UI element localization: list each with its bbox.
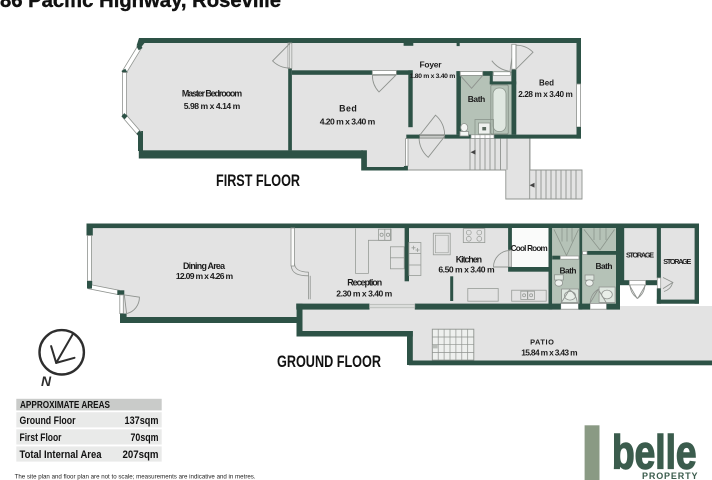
svg-text:Bath: Bath [596,261,613,271]
svg-text:STORAGE: STORAGE [663,257,691,266]
svg-text:Cool Room: Cool Room [511,244,548,253]
svg-text:Bed: Bed [339,104,357,114]
svg-text:Bath: Bath [468,94,486,104]
svg-text:Kitchen: Kitchen [456,254,482,264]
svg-text:Bed: Bed [539,79,554,88]
svg-text:15.84 m x 3.43 m: 15.84 m x 3.43 m [521,347,577,357]
svg-text:2.28 m x 3.40 m: 2.28 m x 3.40 m [518,90,573,99]
svg-text:2.30 m x 3.40 m: 2.30 m x 3.40 m [336,288,392,298]
svg-text:207sqm: 207sqm [123,449,159,461]
svg-text:12.09 m x 4.26 m: 12.09 m x 4.26 m [176,271,234,281]
svg-text:Bath: Bath [560,266,577,276]
svg-text:Master Bedrooom: Master Bedrooom [182,89,242,99]
svg-text:The site plan and floor plan a: The site plan and floor plan are not to … [15,474,256,480]
svg-text:Foyer: Foyer [420,59,443,69]
svg-text:Reception: Reception [347,277,382,287]
svg-text:Dining Area: Dining Area [183,261,225,271]
svg-text:1.80 m x 3.40 m: 1.80 m x 3.40 m [410,73,456,80]
svg-text:5.98 m x 4.14 m: 5.98 m x 4.14 m [184,101,241,111]
svg-text:FIRST FLOOR: FIRST FLOOR [216,172,300,190]
svg-text:APPROXIMATE AREAS: APPROXIMATE AREAS [20,400,110,411]
svg-text:Ground Floor: Ground Floor [20,415,76,427]
svg-text:STORAGE: STORAGE [626,251,654,260]
svg-text:4.20 m x 3.40 m: 4.20 m x 3.40 m [320,117,376,127]
svg-text:First Floor: First Floor [20,432,62,444]
svg-text:86 Pacific Highway, Roseville: 86 Pacific Highway, Roseville [0,0,281,12]
svg-text:PATIO: PATIO [530,337,554,346]
svg-text:GROUND FLOOR: GROUND FLOOR [277,353,381,371]
svg-text:Total Internal Area: Total Internal Area [20,449,102,461]
svg-text:6.50 m x 3.40 m: 6.50 m x 3.40 m [438,265,495,275]
svg-text:137sqm: 137sqm [125,415,159,427]
svg-text:PROPERTY: PROPERTY [642,471,698,480]
svg-text:70sqm: 70sqm [131,432,159,444]
svg-text:N: N [41,373,52,389]
